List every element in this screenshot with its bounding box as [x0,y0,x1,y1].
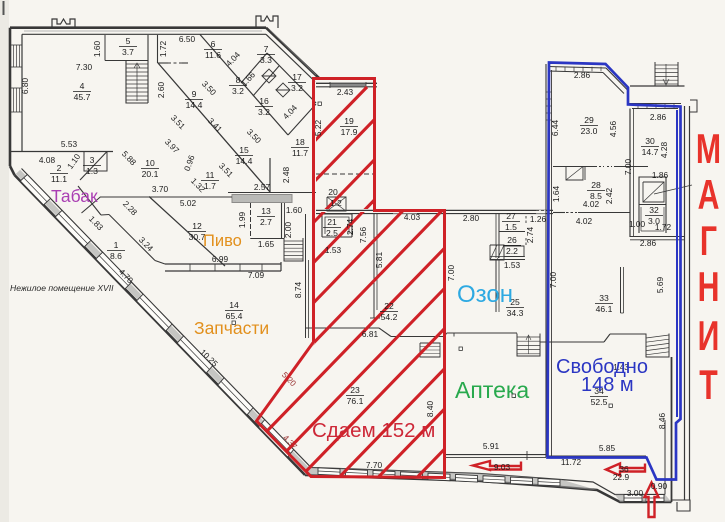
svg-text:29: 29 [584,115,594,125]
svg-text:33: 33 [599,293,609,303]
svg-text:Т: Т [699,361,717,408]
svg-text:2.42: 2.42 [604,188,614,205]
svg-text:2.7: 2.7 [260,217,272,227]
svg-text:7.30: 7.30 [76,62,93,72]
svg-text:4.08: 4.08 [39,155,56,165]
svg-text:21: 21 [327,217,337,227]
svg-text:1.26: 1.26 [530,214,547,224]
svg-text:9.03: 9.03 [494,462,511,472]
svg-text:4.28: 4.28 [659,142,669,159]
svg-text:10: 10 [145,158,155,168]
svg-text:23.0: 23.0 [581,126,598,136]
svg-text:М: М [696,125,721,172]
svg-text:6.81: 6.81 [362,329,379,339]
svg-text:2.2: 2.2 [506,246,518,256]
svg-text:2.5: 2.5 [326,228,338,238]
svg-text:7.56: 7.56 [358,227,368,244]
svg-text:7.09: 7.09 [248,270,265,280]
svg-text:1.99: 1.99 [237,212,247,229]
svg-text:36: 36 [619,464,629,474]
svg-text:26: 26 [507,235,517,245]
svg-text:Н: Н [698,263,720,310]
svg-text:18: 18 [295,137,305,147]
svg-text:Запчасти: Запчасти [194,318,269,338]
svg-text:А: А [698,171,720,218]
svg-text:6.80: 6.80 [20,78,30,95]
svg-text:1.3: 1.3 [86,166,98,176]
svg-text:1: 1 [114,240,119,250]
svg-text:32: 32 [649,205,659,215]
svg-text:И: И [698,312,720,359]
svg-text:14.4: 14.4 [186,100,203,110]
svg-text:11.6: 11.6 [205,50,221,60]
svg-text:3.3: 3.3 [260,55,272,65]
svg-text:2.86: 2.86 [640,238,657,248]
svg-text:2.48: 2.48 [281,167,291,184]
svg-text:2.74: 2.74 [525,227,535,244]
svg-text:1.72: 1.72 [158,41,168,58]
svg-text:30: 30 [645,136,655,146]
svg-text:8.40: 8.40 [425,401,435,418]
svg-text:5.02: 5.02 [180,198,197,208]
svg-text:45.7: 45.7 [74,92,91,102]
svg-text:148 м: 148 м [581,374,634,396]
svg-text:Озон: Озон [457,281,513,308]
svg-text:3.2: 3.2 [258,107,270,117]
svg-text:7.70: 7.70 [366,460,383,470]
svg-text:11.1: 11.1 [51,174,67,184]
svg-text:5.91: 5.91 [483,441,500,451]
svg-text:22: 22 [384,301,394,311]
svg-text:3.70: 3.70 [152,184,169,194]
svg-text:1.60: 1.60 [92,41,102,58]
svg-text:2.86: 2.86 [650,112,667,122]
svg-text:5.85: 5.85 [599,443,616,453]
svg-text:11.72: 11.72 [561,457,582,467]
svg-text:76.1: 76.1 [347,396,364,406]
svg-text:1.86: 1.86 [652,170,669,180]
svg-text:1.53: 1.53 [504,260,521,270]
svg-text:20.1: 20.1 [142,169,159,179]
svg-text:6.44: 6.44 [550,120,560,137]
svg-text:2.57: 2.57 [254,182,271,192]
svg-text:0.90: 0.90 [651,481,668,491]
svg-text:Аптека: Аптека [455,377,529,403]
svg-text:8.74: 8.74 [293,282,303,299]
svg-text:1.60: 1.60 [286,205,303,215]
svg-text:8.5: 8.5 [590,191,602,201]
svg-text:Табак: Табак [51,186,98,206]
svg-text:1.53: 1.53 [325,245,342,255]
svg-text:15: 15 [239,145,249,155]
svg-text:20: 20 [328,187,338,197]
svg-text:3.2: 3.2 [291,83,303,93]
svg-text:6.50: 6.50 [179,34,196,44]
svg-text:14.4: 14.4 [236,156,253,166]
svg-text:1.7: 1.7 [204,181,216,191]
svg-text:4.03: 4.03 [404,212,421,222]
svg-text:2.86: 2.86 [574,70,591,80]
svg-text:7.00: 7.00 [623,159,633,176]
svg-text:27: 27 [506,211,516,221]
svg-text:54.2: 54.2 [381,312,398,322]
svg-text:1.2: 1.2 [330,198,342,208]
svg-text:Пиво: Пиво [203,232,242,250]
svg-text:11: 11 [206,170,215,180]
svg-text:34.3: 34.3 [507,308,524,318]
svg-text:14.7: 14.7 [642,147,659,157]
svg-text:23: 23 [350,385,360,395]
svg-text:9: 9 [192,89,197,99]
svg-text:7: 7 [264,44,269,54]
svg-text:2.80: 2.80 [463,213,480,223]
svg-text:3.0: 3.0 [648,216,660,226]
svg-text:2.43: 2.43 [337,87,354,97]
svg-text:1.65: 1.65 [258,239,275,249]
svg-text:17.9: 17.9 [341,127,358,137]
svg-text:8: 8 [236,75,241,85]
svg-text:4.56: 4.56 [608,121,618,138]
svg-text:2.60: 2.60 [156,82,166,99]
svg-text:1.5: 1.5 [505,222,517,232]
svg-text:16: 16 [259,96,269,106]
svg-text:6.99: 6.99 [212,254,229,264]
svg-text:28: 28 [591,180,601,190]
svg-text:1.00: 1.00 [629,219,646,229]
svg-text:17: 17 [292,72,302,82]
svg-text:7.00: 7.00 [548,272,558,289]
svg-text:Нежилое помещение XVII: Нежилое помещение XVII [10,283,114,293]
svg-text:14: 14 [229,300,239,310]
svg-text:4: 4 [80,81,85,91]
svg-text:5.81: 5.81 [374,252,384,269]
svg-text:2: 2 [57,163,62,173]
svg-text:2.74: 2.74 [345,219,355,236]
svg-text:Сдаем 152 м: Сдаем 152 м [312,419,435,442]
svg-text:5.69: 5.69 [655,277,665,294]
svg-text:8.6: 8.6 [110,251,122,261]
svg-text:3.00: 3.00 [627,488,644,498]
svg-text:3.7: 3.7 [122,47,134,57]
svg-text:5.53: 5.53 [61,139,78,149]
svg-text:12: 12 [192,221,202,231]
svg-text:Г: Г [700,217,717,264]
svg-text:13: 13 [261,206,271,216]
svg-text:46.1: 46.1 [596,304,613,314]
svg-text:3: 3 [90,155,95,165]
svg-text:2.00: 2.00 [283,222,293,239]
svg-text:5.22: 5.22 [313,120,323,137]
svg-text:4.02: 4.02 [576,216,593,226]
svg-text:5: 5 [126,36,131,46]
svg-text:1.64: 1.64 [551,186,561,203]
svg-text:6: 6 [211,39,216,49]
svg-text:52.5: 52.5 [591,397,608,407]
svg-text:19: 19 [344,116,354,126]
svg-text:3.2: 3.2 [232,86,244,96]
svg-text:11.7: 11.7 [292,148,308,158]
svg-text:7.00: 7.00 [446,265,456,282]
svg-text:8.46: 8.46 [657,413,667,430]
